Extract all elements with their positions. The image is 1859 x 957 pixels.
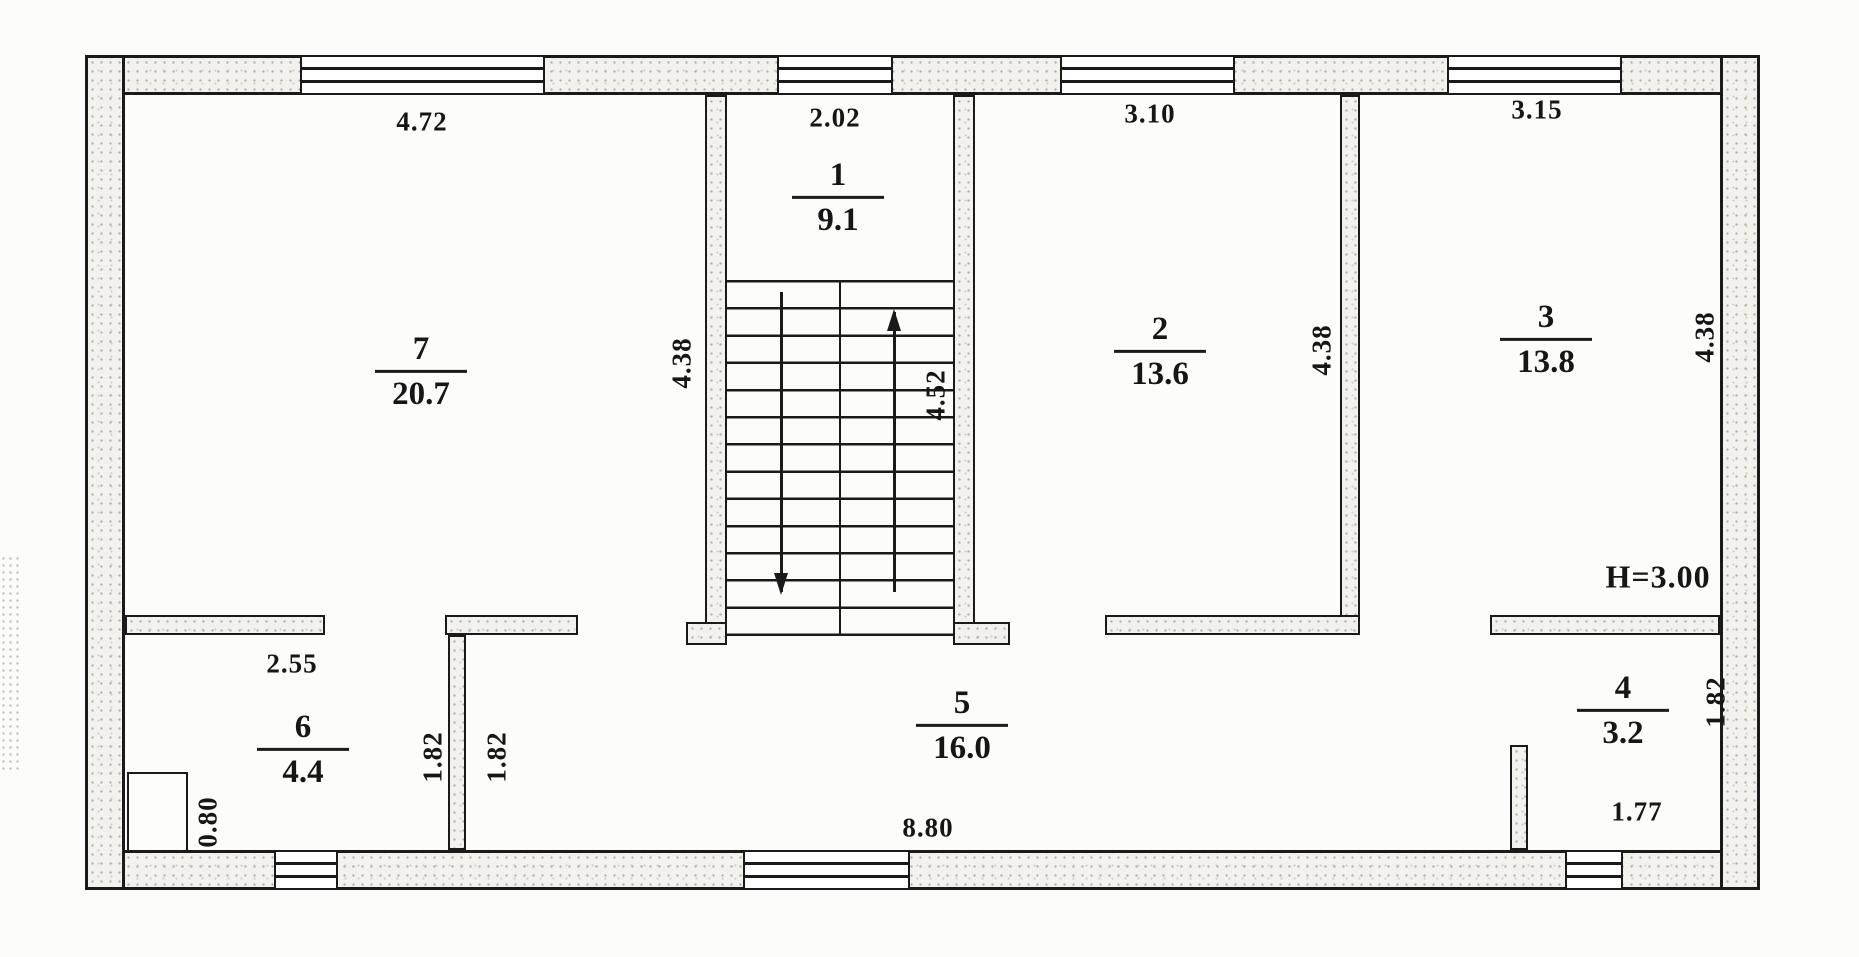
room-6-number: 6 bbox=[257, 710, 349, 751]
room-1-number: 1 bbox=[792, 158, 884, 199]
room-5-number: 5 bbox=[916, 686, 1008, 727]
room-label-6: 6 4.4 bbox=[257, 710, 349, 790]
room-3-number: 3 bbox=[1500, 300, 1592, 341]
arrow-down-head bbox=[774, 573, 788, 595]
stair-divider bbox=[839, 280, 842, 634]
window-room7 bbox=[300, 55, 545, 95]
outer-wall-left bbox=[85, 55, 125, 890]
window-room2 bbox=[1060, 55, 1235, 95]
room-label-3: 3 13.8 bbox=[1500, 300, 1592, 380]
room-4-area: 3.2 bbox=[1577, 712, 1669, 752]
ceiling-height-note: H=3.00 bbox=[1605, 559, 1710, 596]
dim-room3-depth: 4.38 bbox=[1690, 311, 1721, 362]
staircase bbox=[727, 280, 953, 637]
dim-room3-width: 3.15 bbox=[1511, 95, 1562, 126]
room-6-area: 4.4 bbox=[257, 751, 349, 791]
room-7-area: 20.7 bbox=[375, 373, 467, 413]
room-7-number: 7 bbox=[375, 332, 467, 373]
window-room5 bbox=[743, 850, 910, 890]
dim-room6-width: 2.55 bbox=[266, 649, 317, 680]
scan-artifact bbox=[0, 555, 22, 770]
dim-room2-width: 3.10 bbox=[1124, 99, 1175, 130]
room-2-number: 2 bbox=[1114, 312, 1206, 353]
partition-below-room3 bbox=[1490, 615, 1720, 635]
dim-room4-depth: 1.82 bbox=[1701, 676, 1732, 727]
stairwell-left-foot bbox=[686, 622, 727, 645]
room-3-area: 13.8 bbox=[1500, 341, 1592, 381]
window-room4 bbox=[1565, 850, 1623, 890]
stairwell-right-wall bbox=[953, 95, 975, 645]
room-5-area: 16.0 bbox=[916, 727, 1008, 767]
dim-room7-width: 4.72 bbox=[396, 107, 447, 138]
dim-partition-right: 1.82 bbox=[482, 731, 513, 782]
room-label-7: 7 20.7 bbox=[375, 332, 467, 412]
partition-room6-right-stem bbox=[448, 635, 466, 850]
room-1-area: 9.1 bbox=[792, 199, 884, 239]
dim-room7-depth: 4.38 bbox=[667, 337, 698, 388]
room6-niche bbox=[127, 772, 188, 852]
dim-partition-left: 1.82 bbox=[418, 731, 449, 782]
wall-room2-room3 bbox=[1340, 95, 1360, 635]
window-room1 bbox=[777, 55, 893, 95]
dim-room4-width: 1.77 bbox=[1611, 797, 1662, 828]
arrow-up-head bbox=[887, 309, 901, 331]
room-label-4: 4 3.2 bbox=[1577, 671, 1669, 751]
room-4-number: 4 bbox=[1577, 671, 1669, 712]
window-room6 bbox=[274, 850, 338, 890]
partition-room6-right-bar bbox=[445, 615, 578, 635]
dim-corridor-length: 8.80 bbox=[902, 813, 953, 844]
dim-room2-depth: 4.38 bbox=[1307, 324, 1338, 375]
outer-wall-right bbox=[1720, 55, 1760, 890]
window-room3 bbox=[1447, 55, 1622, 95]
stair-arrow-up bbox=[893, 312, 896, 592]
room4-wall-stub bbox=[1510, 745, 1528, 850]
stairwell-left-wall bbox=[705, 95, 727, 645]
partition-below-room2 bbox=[1105, 615, 1360, 635]
floor-plan: 1 9.1 2 13.6 3 13.8 4 3.2 5 16.0 6 4.4 7… bbox=[0, 0, 1859, 957]
stair-arrow-down bbox=[780, 292, 783, 592]
room-label-5: 5 16.0 bbox=[916, 686, 1008, 766]
stairwell-right-foot bbox=[953, 622, 1010, 645]
room-2-area: 13.6 bbox=[1114, 353, 1206, 393]
room-label-1: 1 9.1 bbox=[792, 158, 884, 238]
dim-room6-niche: 0.80 bbox=[193, 796, 224, 847]
partition-room6-top bbox=[125, 615, 325, 635]
dim-stair-depth: 4.52 bbox=[921, 369, 952, 420]
room-label-2: 2 13.6 bbox=[1114, 312, 1206, 392]
dim-room1-width: 2.02 bbox=[809, 103, 860, 134]
